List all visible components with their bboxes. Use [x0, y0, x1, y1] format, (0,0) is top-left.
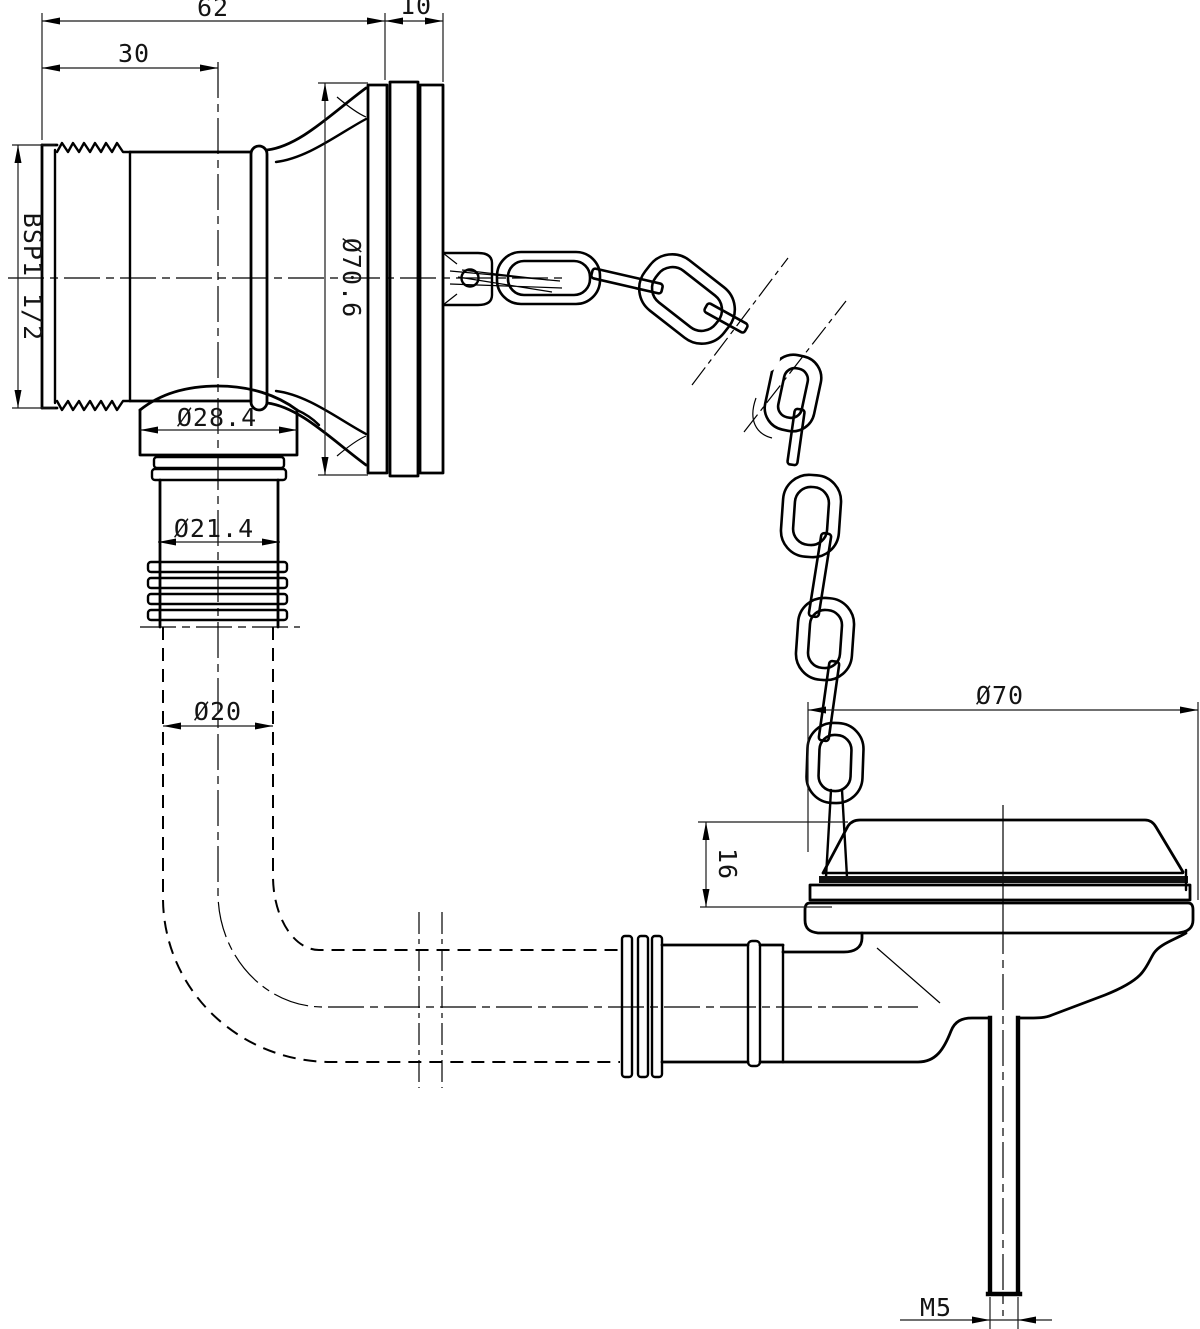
flange-plate	[390, 82, 418, 476]
arrowhead	[163, 723, 181, 730]
chain-link-hole	[818, 734, 852, 791]
bell-inner-bottom	[276, 391, 366, 434]
dim-62-10-lines	[42, 13, 443, 140]
dim-spigot-diameter-label: Ø21.4	[174, 514, 254, 543]
dim-thread-length-label: 30	[118, 39, 150, 68]
overflow-body	[42, 82, 562, 476]
chain-link-hole	[807, 609, 843, 669]
arrowhead	[703, 889, 710, 907]
collar-ring-2	[152, 469, 286, 480]
arrowhead	[972, 1317, 990, 1324]
link-cut-mask	[752, 344, 780, 372]
arrowhead	[200, 65, 218, 72]
arrowhead	[322, 457, 329, 475]
inlet-spigot	[662, 945, 783, 1062]
thread-crest-bottom	[57, 401, 130, 410]
flange-backplate	[420, 85, 443, 473]
body-left-profile	[783, 1018, 990, 1062]
arrowhead	[255, 723, 273, 730]
drawing-sheet: 62 10 30 BSP1 1/2 Ø70.6 Ø28.4 Ø21.4 Ø	[0, 0, 1200, 1329]
body-right-profile	[1018, 933, 1186, 1018]
chain-link-hole	[792, 486, 830, 546]
arrowhead	[1180, 707, 1198, 714]
dim-tube-diameter-label: Ø20	[194, 697, 242, 726]
plug-seal	[819, 876, 1188, 883]
bell-inner-top	[276, 119, 366, 162]
dim-flange-thickness-label: 10	[400, 0, 432, 20]
chain-link-hole	[645, 260, 730, 338]
arrowhead	[808, 707, 826, 714]
plug-chain	[497, 243, 864, 877]
dim-thread-size-label: BSP1 1/2	[18, 213, 47, 341]
arrowhead	[15, 390, 22, 408]
link-cut-arc	[753, 398, 772, 438]
chain-bar	[818, 661, 839, 742]
dim-plug-diameter-label: Ø70	[976, 681, 1024, 710]
arrowhead	[1018, 1317, 1036, 1324]
waste-body	[622, 903, 1193, 1294]
plug-seat-plate	[810, 885, 1190, 900]
center-lines	[8, 62, 1003, 1316]
dim-plug-height-label: 16	[713, 848, 742, 880]
arrowhead	[42, 65, 60, 72]
tube-inner-hidden	[273, 627, 620, 950]
arrowhead	[140, 427, 158, 434]
branch-centerline	[218, 62, 918, 1007]
m5-rod	[988, 1018, 1020, 1294]
chain-wire-loop	[450, 270, 562, 292]
arrowhead	[322, 83, 329, 101]
arrowhead	[15, 145, 22, 163]
flange-gasket	[368, 85, 387, 473]
dim-overall-length-label: 62	[197, 0, 229, 22]
plug	[810, 820, 1190, 900]
waste-flange	[805, 903, 1193, 933]
collar-ring-1	[154, 457, 284, 468]
arrowhead	[279, 427, 297, 434]
technical-drawing: 62 10 30 BSP1 1/2 Ø70.6 Ø28.4 Ø21.4 Ø	[0, 0, 1200, 1329]
flange-lip	[783, 933, 862, 952]
shank-surface	[130, 152, 251, 401]
tube-outer-hidden	[163, 627, 620, 1062]
dim-overflow-flange-diameter-label: Ø70.6	[337, 238, 366, 318]
chain-link	[628, 243, 746, 355]
inlet-collar	[748, 941, 760, 1066]
thread-crest-top	[57, 143, 130, 152]
boss-chamfers	[443, 253, 457, 305]
dim-dome-diameter-label: Ø28.4	[177, 403, 257, 432]
bell-outer-top	[267, 88, 366, 150]
dome-right-merge	[297, 410, 319, 425]
dim-rod-thread-label: M5	[920, 1293, 952, 1322]
arrowhead	[367, 18, 385, 25]
internal-edge	[877, 948, 940, 1003]
arrowhead	[42, 18, 60, 25]
arrowhead	[703, 822, 710, 840]
